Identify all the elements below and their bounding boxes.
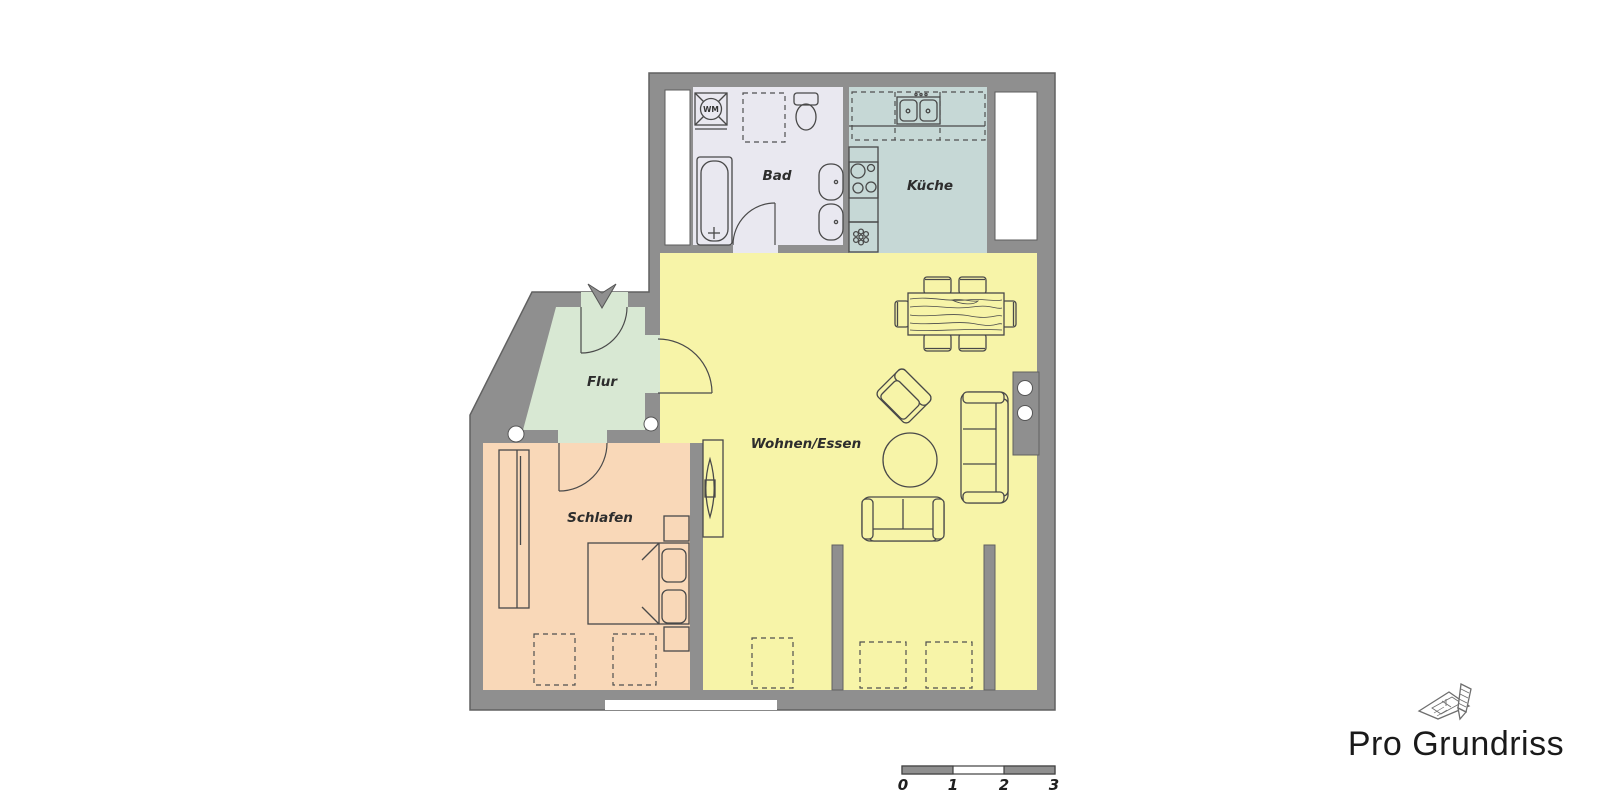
tv-lowboard (703, 440, 723, 537)
coffee-table (883, 433, 937, 487)
nightstand (664, 627, 689, 651)
facade-recess (605, 700, 777, 710)
scale-tick: 0 (898, 776, 908, 794)
logo: Pro Grundriss (1348, 684, 1564, 763)
scale-tick: 2 (999, 776, 1009, 794)
room-label-wohnen-essen: Wohnen/Essen (751, 436, 861, 452)
room-label-kueche: Küche (907, 178, 953, 194)
nightstand (664, 516, 689, 541)
sofa-3seat (961, 392, 1008, 503)
shaft-left (665, 90, 690, 245)
chimney (1013, 372, 1039, 455)
washing-machine-label: WM (703, 105, 719, 114)
flur-wohnen-threshold (645, 335, 660, 393)
flur-schlafen-threshold (558, 430, 607, 443)
floorplan-sheet-icon (1419, 684, 1471, 719)
floorplan-canvas: WM (0, 0, 1600, 800)
wall-pipe (644, 417, 658, 431)
logo-text: Pro Grundriss (1348, 725, 1564, 763)
wall-pipe (508, 426, 524, 442)
scale-tick: 1 (948, 776, 958, 794)
floorplan-page: WM (0, 0, 1600, 800)
sofa-2seat (862, 497, 944, 541)
shaft-right (995, 92, 1037, 240)
wardrobe (499, 450, 529, 608)
room-label-bad: Bad (762, 168, 791, 184)
chimney-flue (1018, 406, 1033, 421)
wall-stub-right (984, 545, 995, 690)
kitchen-sink (897, 93, 940, 124)
chimney-flue (1018, 381, 1033, 396)
dining-table (908, 293, 1004, 335)
bed (588, 543, 689, 624)
wall-stub-left (832, 545, 843, 690)
scale-tick: 3 (1049, 776, 1059, 794)
room-label-schlafen: Schlafen (567, 510, 633, 526)
bad-door-threshold (733, 245, 778, 254)
room-label-flur: Flur (587, 374, 618, 390)
scale-bar: 0 1 2 3 (898, 766, 1059, 794)
